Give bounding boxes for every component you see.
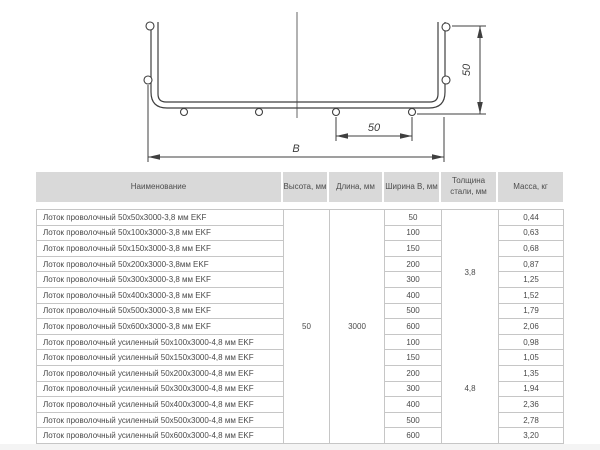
cell-width-b: 300 — [385, 272, 442, 288]
header-length: Длина, мм — [329, 172, 384, 202]
cell-mass: 1,35 — [499, 365, 564, 381]
cell-mass: 0,63 — [499, 225, 564, 241]
dim-wire-spacing-label: 50 — [368, 122, 381, 134]
cell-width-b: 100 — [385, 334, 442, 350]
tray-profile — [151, 22, 445, 108]
table-row: Лоток проволочный 50х50х3000-3,8 мм EKF5… — [37, 210, 564, 226]
cell-name: Лоток проволочный 50х400х3000-3,8 мм EKF — [37, 287, 284, 303]
cell-width-b: 100 — [385, 225, 442, 241]
cell-thickness-merged: 4,8 — [442, 334, 499, 443]
cell-mass: 1,52 — [499, 287, 564, 303]
cell-width-b: 500 — [385, 412, 442, 428]
cell-name: Лоток проволочный усиленный 50х600х3000-… — [37, 428, 284, 444]
tray-drawing-svg: 50 50 В — [0, 0, 600, 170]
cell-width-b: 150 — [385, 350, 442, 366]
cell-name: Лоток проволочный 50х500х3000-3,8 мм EKF — [37, 303, 284, 319]
cell-width-b: 150 — [385, 241, 442, 257]
dim-width-label: В — [292, 143, 299, 155]
spec-table: Наименование Высота, мм Длина, мм Ширина… — [36, 172, 563, 444]
cell-mass: 1,05 — [499, 350, 564, 366]
cell-name: Лоток проволочный усиленный 50х200х3000-… — [37, 365, 284, 381]
cell-thickness-merged: 3,8 — [442, 210, 499, 335]
cell-name: Лоток проволочный усиленный 50х400х3000-… — [37, 397, 284, 413]
cell-width-b: 50 — [385, 210, 442, 226]
bottom-scan-artifact — [0, 444, 600, 450]
cell-name: Лоток проволочный 50х200х3000-3,8мм EKF — [37, 256, 284, 272]
cell-name: Лоток проволочный усиленный 50х100х3000-… — [37, 334, 284, 350]
cell-name: Лоток проволочный 50х150х3000-3,8 мм EKF — [37, 241, 284, 257]
spec-table-body: Лоток проволочный 50х50х3000-3,8 мм EKF5… — [37, 210, 564, 444]
cell-mass: 0,98 — [499, 334, 564, 350]
header-width-b: Ширина В, мм — [384, 172, 441, 202]
cell-name: Лоток проволочный усиленный 50х500х3000-… — [37, 412, 284, 428]
header-mass: Масса, кг — [498, 172, 563, 202]
cell-width-b: 400 — [385, 287, 442, 303]
cell-mass: 3,20 — [499, 428, 564, 444]
cell-width-b: 500 — [385, 303, 442, 319]
cell-width-b: 200 — [385, 365, 442, 381]
cell-mass: 1,94 — [499, 381, 564, 397]
cell-name: Лоток проволочный 50х300х3000-3,8 мм EKF — [37, 272, 284, 288]
cell-mass: 2,78 — [499, 412, 564, 428]
tray-cross-section-drawing: 50 50 В — [0, 0, 600, 170]
cell-name: Лоток проволочный 50х50х3000-3,8 мм EKF — [37, 210, 284, 226]
cell-height-merged: 50 — [284, 210, 330, 444]
header-height: Высота, мм — [283, 172, 329, 202]
cell-mass: 2,06 — [499, 319, 564, 335]
dimension-side-height — [417, 26, 486, 114]
cell-mass: 1,79 — [499, 303, 564, 319]
cell-name: Лоток проволочный усиленный 50х300х3000-… — [37, 381, 284, 397]
cell-width-b: 200 — [385, 256, 442, 272]
header-name: Наименование — [36, 172, 283, 202]
cell-mass: 1,25 — [499, 272, 564, 288]
cell-width-b: 300 — [385, 381, 442, 397]
cell-width-b: 600 — [385, 319, 442, 335]
cell-width-b: 400 — [385, 397, 442, 413]
cell-mass: 2,36 — [499, 397, 564, 413]
cell-mass: 0,44 — [499, 210, 564, 226]
cell-width-b: 600 — [385, 428, 442, 444]
header-thickness: Толщина стали, мм — [441, 172, 498, 202]
cell-mass: 0,87 — [499, 256, 564, 272]
cell-name: Лоток проволочный усиленный 50х150х3000-… — [37, 350, 284, 366]
cell-length-merged: 3000 — [330, 210, 385, 444]
dim-side-height-label: 50 — [461, 63, 473, 76]
cell-name: Лоток проволочный 50х600х3000-3,8 мм EKF — [37, 319, 284, 335]
table-header-row: Наименование Высота, мм Длина, мм Ширина… — [36, 172, 563, 202]
spec-table-grid: Лоток проволочный 50х50х3000-3,8 мм EKF5… — [36, 209, 564, 444]
cell-mass: 0,68 — [499, 241, 564, 257]
cell-name: Лоток проволочный 50х100х3000-3,8 мм EKF — [37, 225, 284, 241]
